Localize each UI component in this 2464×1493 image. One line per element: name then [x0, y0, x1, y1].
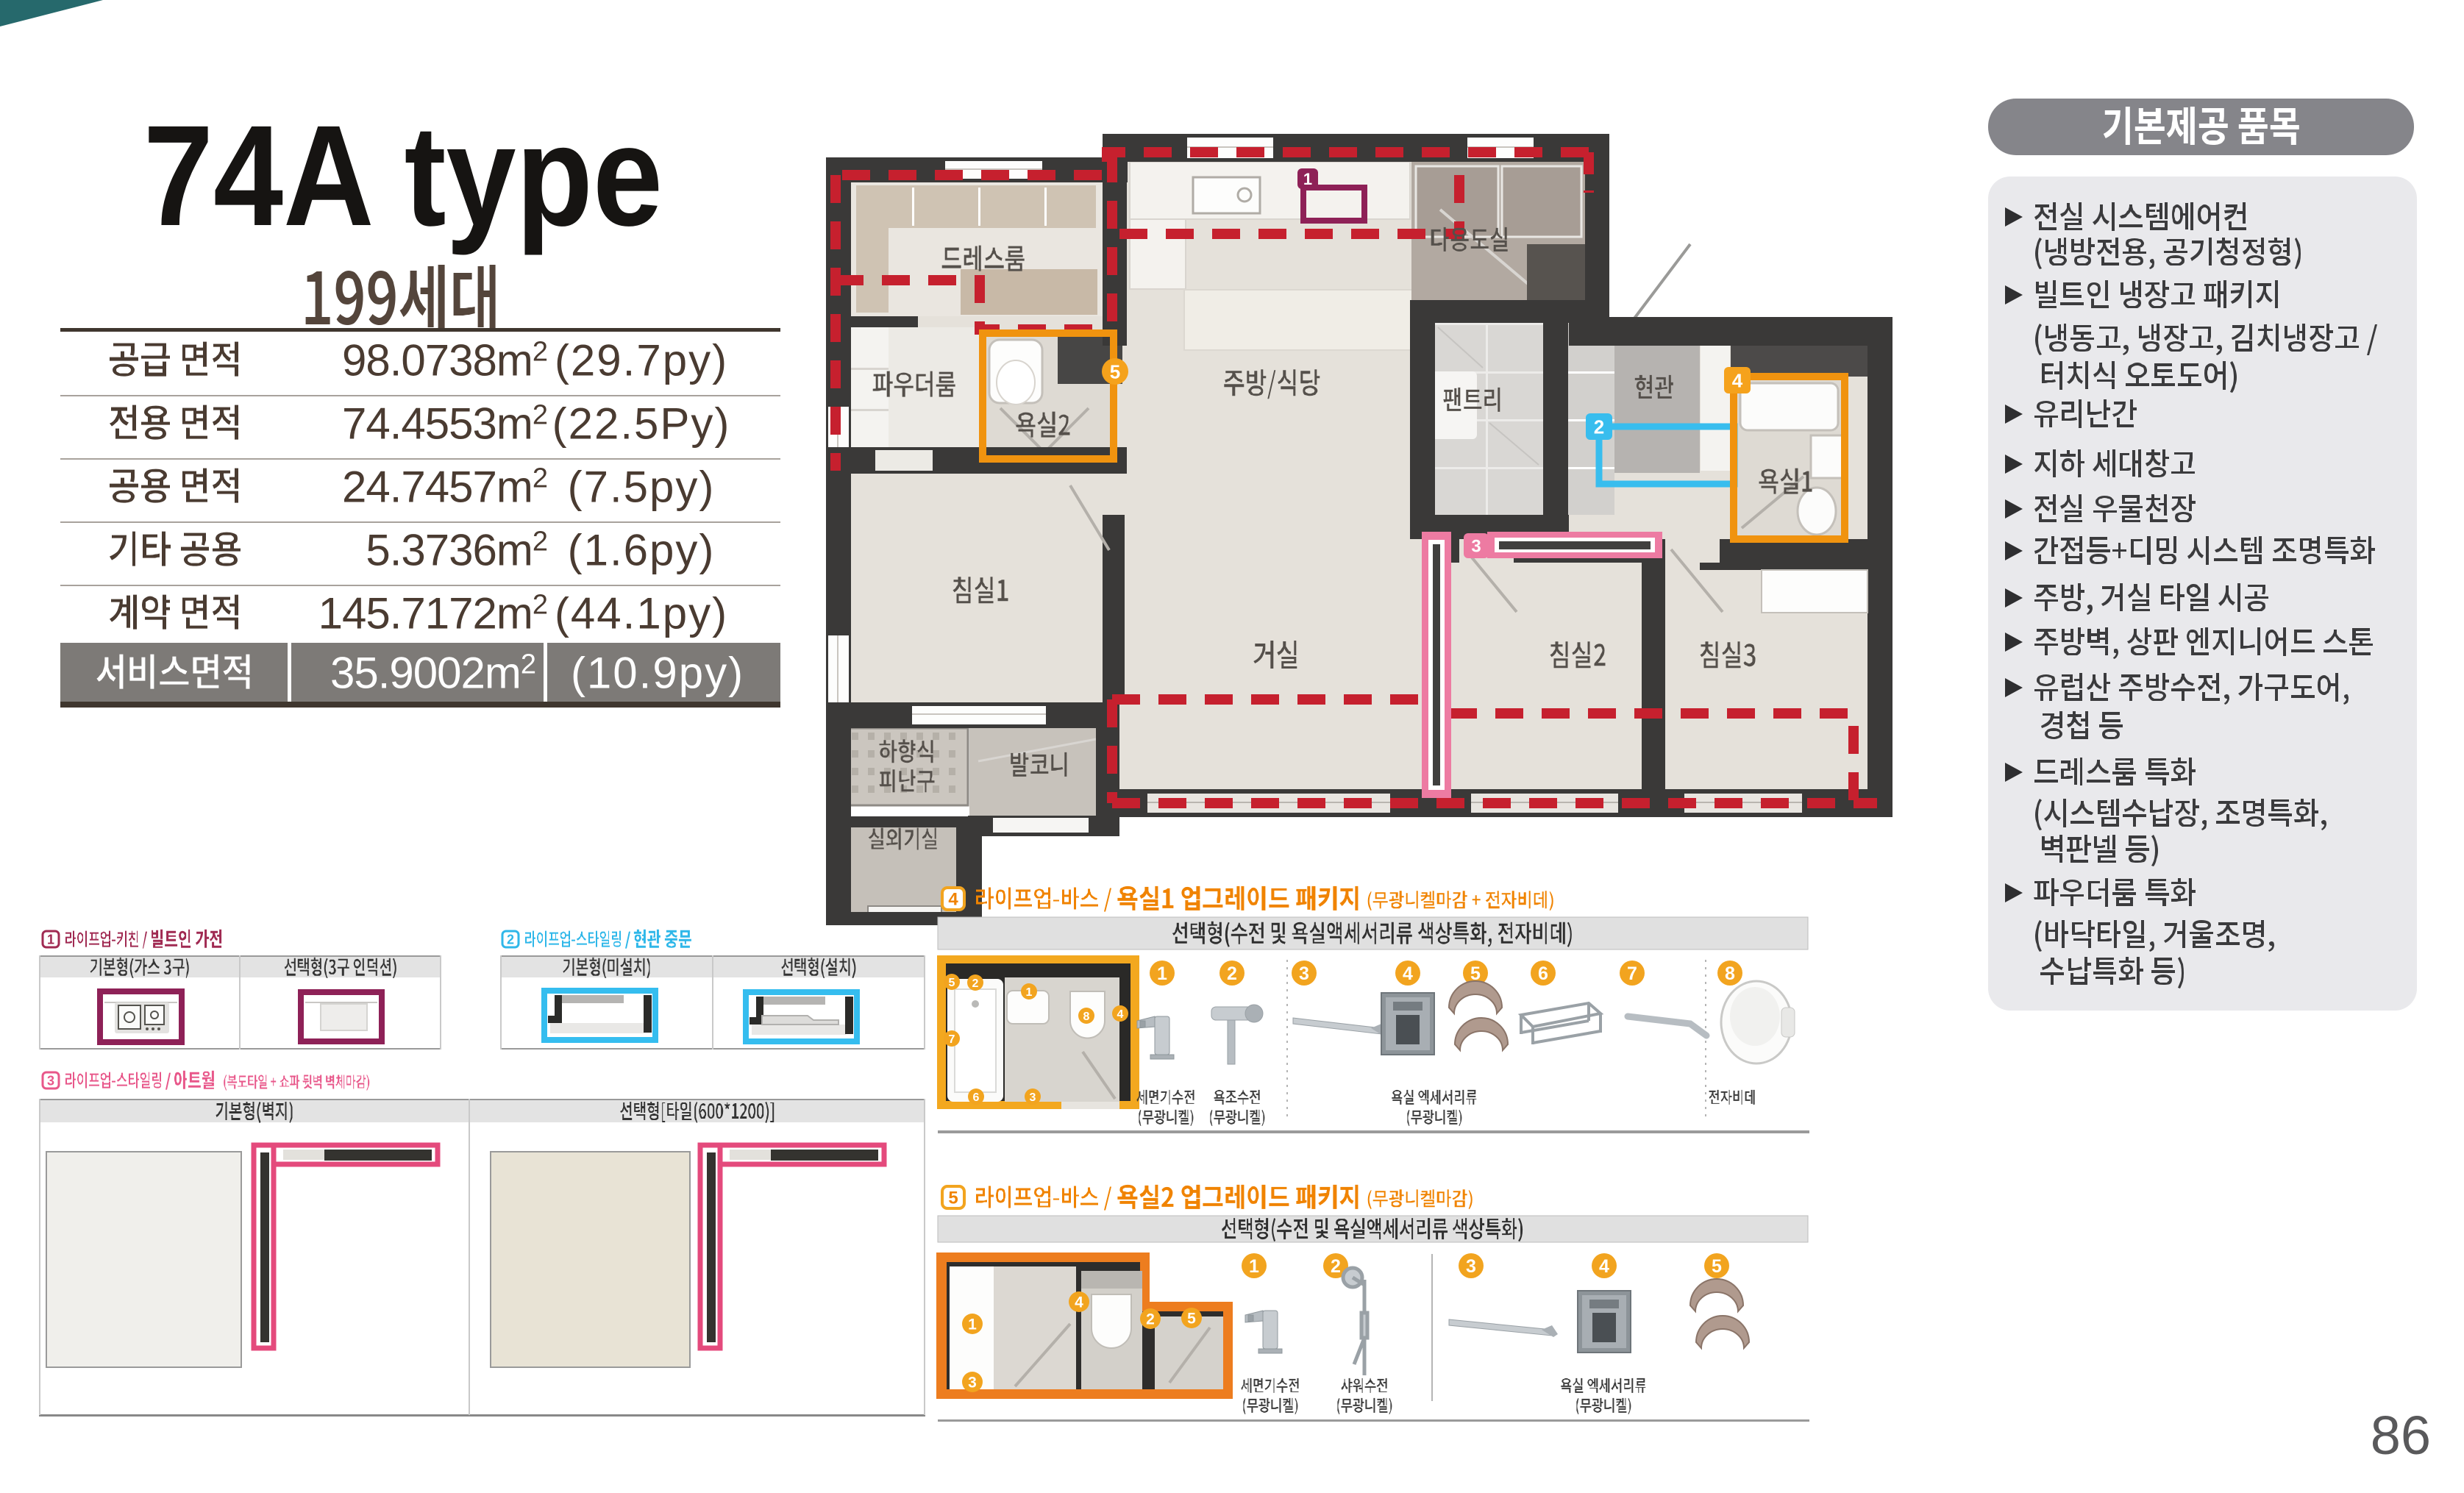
svg-text:(22.5Py): (22.5Py)	[552, 399, 731, 449]
svg-text:2: 2	[507, 932, 514, 947]
svg-text:(10.9py): (10.9py)	[571, 649, 744, 698]
svg-text:(44.1py): (44.1py)	[555, 589, 728, 638]
svg-text:7: 7	[949, 1033, 955, 1046]
svg-text:5: 5	[948, 1189, 958, 1208]
svg-text:5.3736m2: 5.3736m2	[366, 526, 547, 575]
svg-text:4: 4	[1732, 369, 1743, 391]
svg-text:4: 4	[1403, 963, 1413, 984]
svg-text:4: 4	[1117, 1008, 1124, 1021]
svg-text:5: 5	[1110, 360, 1120, 382]
svg-text:(7.5py): (7.5py)	[568, 463, 716, 512]
svg-text:74A type: 74A type	[143, 96, 663, 256]
svg-text:1: 1	[1026, 986, 1033, 999]
svg-text:1: 1	[968, 1316, 977, 1333]
svg-text:5: 5	[1712, 1256, 1722, 1277]
svg-text:3: 3	[1299, 963, 1309, 984]
svg-text:3: 3	[1466, 1256, 1476, 1277]
svg-text:3: 3	[968, 1375, 977, 1392]
svg-text:3: 3	[1030, 1091, 1036, 1104]
svg-text:6: 6	[973, 1091, 980, 1104]
svg-text:4: 4	[948, 890, 958, 910]
svg-text:145.7172m2: 145.7172m2	[318, 589, 547, 638]
svg-text:1: 1	[47, 932, 54, 947]
svg-text:5: 5	[1187, 1311, 1196, 1328]
svg-text:2: 2	[1331, 1256, 1341, 1277]
svg-text:8: 8	[1083, 1011, 1090, 1023]
svg-text:4: 4	[1599, 1256, 1609, 1277]
svg-text:24.7457m2: 24.7457m2	[342, 463, 547, 512]
svg-text:3: 3	[47, 1073, 54, 1088]
svg-text:2: 2	[1594, 416, 1604, 438]
svg-text:86: 86	[2371, 1405, 2431, 1466]
svg-text:3: 3	[1471, 537, 1481, 557]
svg-text:(29.7py): (29.7py)	[555, 336, 728, 385]
svg-text:2: 2	[972, 977, 979, 990]
svg-text:2: 2	[1146, 1311, 1155, 1328]
svg-text:1: 1	[1157, 963, 1167, 984]
svg-text:6: 6	[1538, 963, 1548, 984]
svg-text:5: 5	[949, 977, 955, 989]
svg-text:4: 4	[1075, 1294, 1083, 1311]
svg-text:74.4553m2: 74.4553m2	[342, 399, 547, 449]
svg-text:(1.6py): (1.6py)	[568, 526, 716, 575]
svg-text:35.9002m2: 35.9002m2	[330, 649, 535, 698]
svg-text:1: 1	[1249, 1256, 1259, 1277]
svg-text:98.0738m2: 98.0738m2	[342, 336, 547, 385]
svg-text:7: 7	[1627, 963, 1637, 984]
svg-text:2: 2	[1227, 963, 1237, 984]
svg-text:1: 1	[1303, 170, 1312, 188]
svg-text:8: 8	[1725, 963, 1735, 984]
